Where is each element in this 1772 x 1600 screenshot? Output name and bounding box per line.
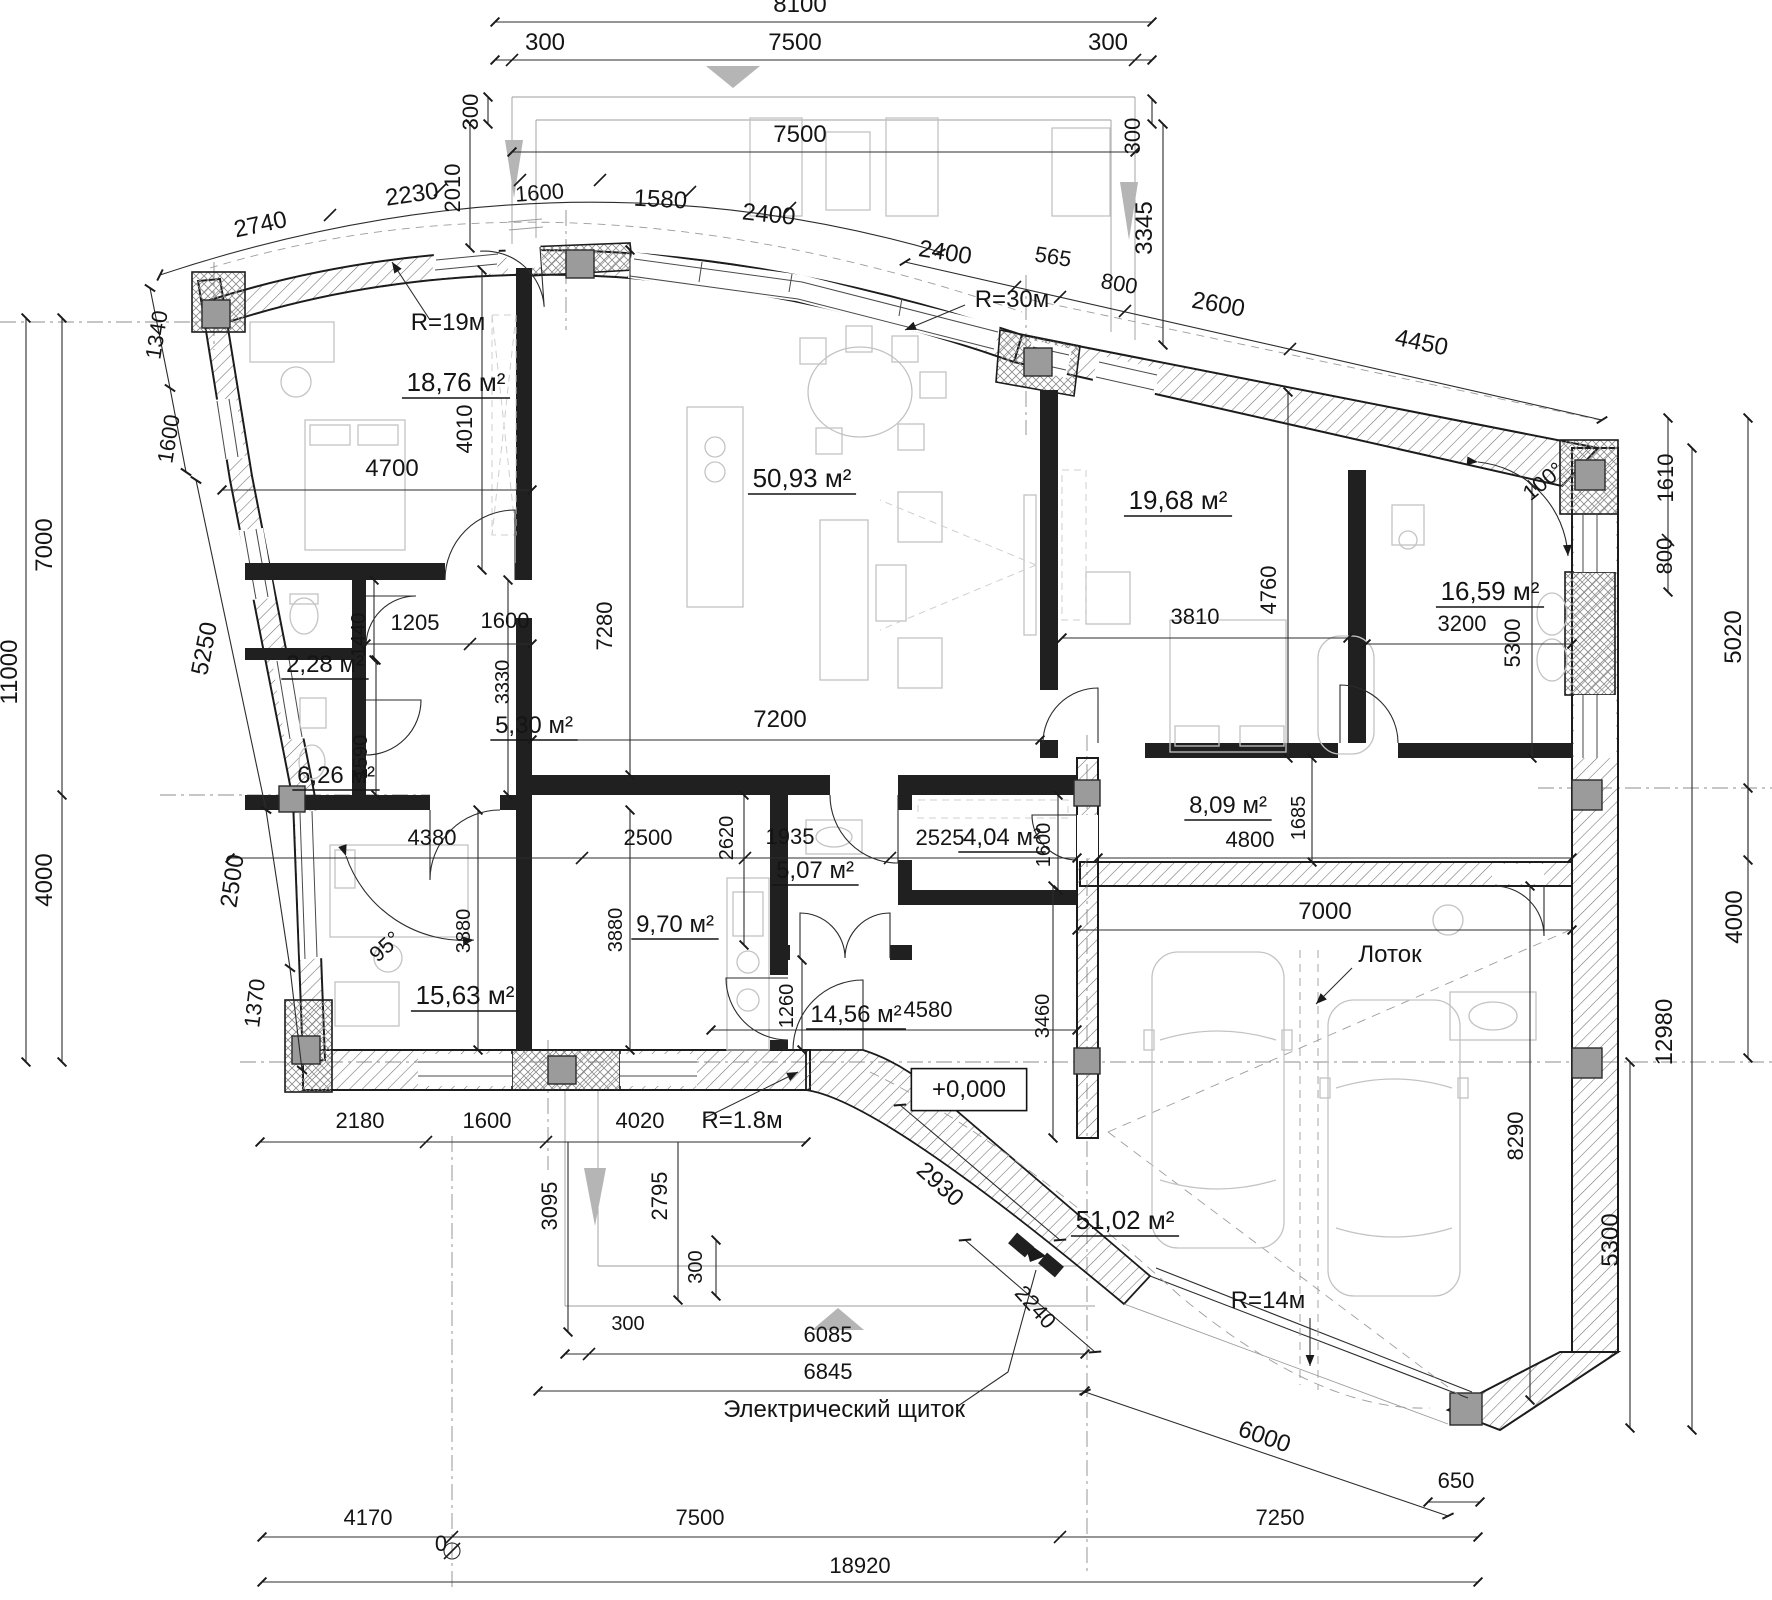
room-area-label: 51,02 м² [1076,1205,1175,1235]
dimension-label: 5020 [1720,610,1747,663]
dimension-label: 5300 [1500,619,1525,668]
dimension-label: 300 [685,1250,707,1283]
dimension-label: 565 [1033,241,1073,271]
annotation-note: R=14м [1231,1287,1306,1314]
car-1 [1144,952,1292,1248]
dimension-label: 4000 [1721,890,1748,943]
room-area-label: 50,93 м² [753,463,852,493]
car-2 [1320,1000,1468,1296]
dimension-label: 650 [1438,1468,1475,1493]
floor-plan-canvas: 8100300750030075003002010300334527402230… [0,0,1772,1600]
dimension-label: 1440 [348,613,370,658]
dimension-label: 4580 [904,997,953,1022]
dimension-label: 4170 [344,1505,393,1530]
dimension-label: 1590 [350,735,372,780]
dimension-label: 1205 [391,610,440,635]
dimension-label: 4760 [1256,566,1281,615]
annotation-note: R=1.8м [701,1107,782,1134]
dimension-label: 7200 [753,706,806,733]
dimension-label: 7500 [768,29,821,56]
dimension-label: 300 [611,1313,644,1335]
dimension-label: 4020 [616,1108,665,1133]
dimension-label: 3880 [453,909,475,954]
dimension-label: 800 [1099,268,1140,299]
dimension-label: 4000 [31,853,58,906]
dimension-label: 2400 [741,198,797,230]
dimension-label: 1600 [152,413,184,465]
dimension-label: 7500 [773,121,826,148]
dimension-label: 5300 [1597,1213,1624,1266]
annotation-note: Электрический щиток [723,1396,965,1423]
angle-label: 95° [364,926,405,967]
dimension-label: 3095 [537,1182,562,1231]
dimension-label: 300 [458,94,483,131]
dimension-label: 7000 [1298,898,1351,925]
dimension-label: 800 [1652,538,1677,575]
dimension-label: 300 [1088,29,1128,56]
dimension-label: 5250 [186,620,223,678]
dimension-label: 1610 [1653,454,1678,503]
dimension-label: 2600 [1190,287,1247,323]
annotation-note: R=30м [975,286,1050,313]
room-area-label: 4,04 м² [963,824,1041,851]
annotation-note: Лоток [1358,941,1422,968]
dimension-label: 2500 [215,853,249,910]
dimension-label: 2230 [384,177,441,211]
dimension-label: 2500 [624,825,673,850]
dimension-label: 2525 [916,825,965,850]
dimension-label: 7000 [31,518,58,571]
dimension-label: 1600 [1033,823,1055,868]
elevation-label: +0,000 [932,1076,1006,1103]
dimension-label: 3330 [492,660,514,705]
dimension-label: 7280 [592,602,617,651]
dimension-label: 1600 [514,178,565,206]
room-area-label: 18,76 м² [407,367,506,397]
dimension-label: 3200 [1438,611,1487,636]
dimension-label: 4450 [1393,324,1451,362]
dimension-label: 3345 [1131,201,1158,254]
dimension-label: 1370 [239,977,270,1029]
dimension-label: 11000 [0,640,23,705]
dimension-label: 8100 [773,0,826,18]
dimension-label: 2795 [647,1172,672,1221]
dimension-label: 6000 [1235,1415,1294,1458]
room-area-label: 14,56 м² [810,1001,901,1028]
dimension-label: 6085 [804,1322,853,1347]
dimension-label: 2010 [440,164,465,213]
dimension-label: 1260 [776,984,798,1029]
dimension-label: 1600 [463,1108,512,1133]
floor-plan-page: 8100300750030075003002010300334527402230… [0,0,1772,1600]
room-area-label: 15,63 м² [416,980,515,1010]
dimension-label: 1580 [633,185,688,215]
dimension-label: 1600 [481,608,530,633]
dimension-label: 300 [525,29,565,56]
dimension-label: 1935 [766,824,815,849]
room-area-label: 8,09 м² [1189,792,1267,819]
dimension-label: 4380 [408,825,457,850]
dimension-label: 4700 [365,455,418,482]
dimension-label: 12980 [1651,999,1678,1066]
dimension-label: 4800 [1226,827,1275,852]
dimension-label: 4010 [452,405,477,454]
dimension-label: 6845 [804,1359,853,1384]
dimension-label: 2400 [917,235,974,270]
dimension-label: 8290 [1503,1112,1528,1161]
dimension-label: 3810 [1171,604,1220,629]
annotation-note: R=19м [411,309,486,336]
dimension-label: 2620 [716,816,738,861]
room-area-label: 16,59 м² [1441,576,1540,606]
dimension-label: 1685 [1288,796,1310,841]
dimension-label: 300 [1120,118,1145,155]
dimension-label: 3460 [1032,994,1054,1039]
dimension-label: 2240 [1010,1280,1061,1333]
arrow-down-porch [584,1168,606,1226]
dimension-label: 18920 [829,1553,890,1578]
room-area-label: 9,70 м² [636,911,714,938]
room-area-label: 19,68 м² [1129,485,1228,515]
arrow-down-terrace [706,66,760,88]
room-area-label: 5,30 м² [495,712,573,739]
dimension-label: 1340 [140,309,172,361]
dimension-label: 3880 [605,908,627,953]
dimension-label: 2740 [232,206,290,244]
dimension-label: 2180 [336,1108,385,1133]
dimension-label: 7250 [1256,1505,1305,1530]
room-area-label: 5,07 м² [776,857,854,884]
dimension-label: 0 [435,1531,447,1556]
dimension-label: 7500 [676,1505,725,1530]
